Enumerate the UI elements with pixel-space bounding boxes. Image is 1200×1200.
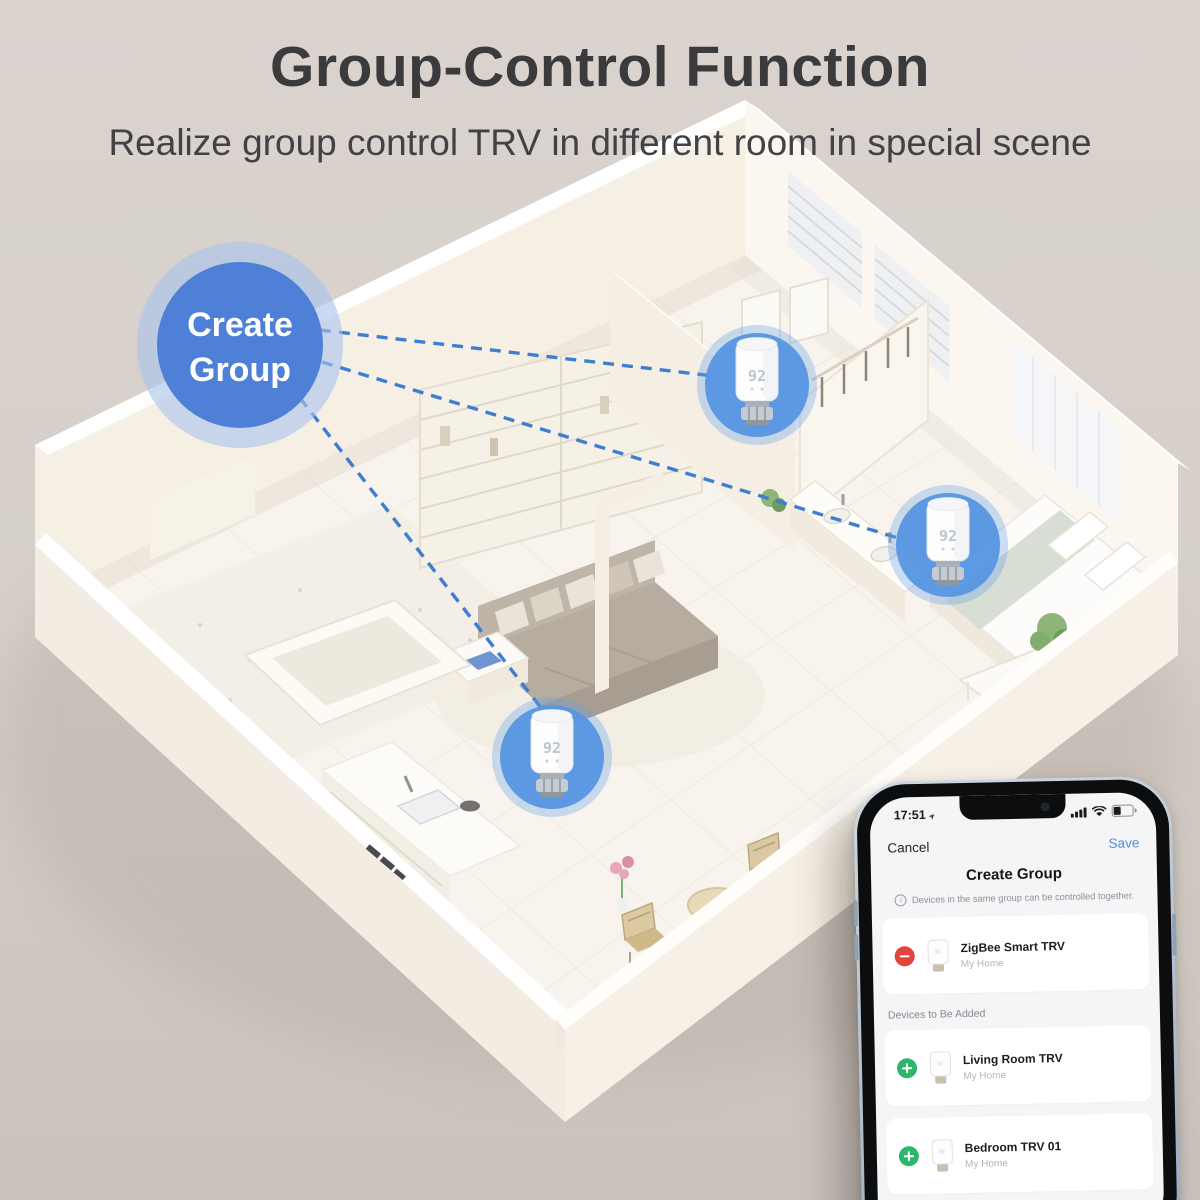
add-device-button[interactable]	[899, 1146, 919, 1166]
trv-thumbnail	[924, 939, 951, 972]
volume-up-button	[854, 900, 859, 926]
trv-thumbnail	[929, 1139, 956, 1172]
battery-icon	[1112, 804, 1134, 816]
wifi-icon	[1092, 806, 1107, 817]
volume-down-button	[854, 934, 859, 960]
device-location: My Home	[961, 956, 1066, 969]
camera-icon	[1040, 802, 1049, 811]
trv-display-value: 92	[939, 527, 957, 545]
device-location: My Home	[965, 1157, 1062, 1170]
trv-highlight-2: 92	[888, 485, 1008, 605]
status-time: 17:51	[894, 808, 926, 823]
device-location: My Home	[963, 1068, 1063, 1081]
create-group-badge: Create Group	[137, 242, 343, 448]
screen-title: Create Group	[871, 863, 1157, 886]
trv-thumbnail	[927, 1051, 954, 1084]
cancel-button[interactable]: Cancel	[887, 840, 929, 856]
cellular-icon	[1071, 806, 1087, 817]
trv-display-value: 92	[748, 367, 766, 385]
trv-highlight-1: 92	[697, 325, 817, 445]
trv-highlight-3: 92	[492, 697, 612, 817]
phone-mockup: 17:51➤	[853, 776, 1181, 1200]
device-to-add-card[interactable]: Living Room TRV My Home	[884, 1025, 1152, 1107]
badge-label-line2: Group	[189, 351, 291, 389]
group-device-card[interactable]: ZigBee Smart TRV My Home	[882, 913, 1150, 995]
note-row: i Devices in the same group can be contr…	[871, 889, 1157, 907]
phone-screen: 17:51➤	[869, 792, 1164, 1200]
badge-label-line1: Create	[187, 306, 293, 344]
add-device-button[interactable]	[897, 1058, 917, 1078]
device-name: ZigBee Smart TRV	[960, 938, 1065, 954]
notch	[959, 794, 1065, 820]
info-icon: i	[895, 894, 907, 906]
remove-device-button[interactable]	[894, 946, 914, 966]
phone-bezel: 17:51➤	[856, 779, 1178, 1200]
badge-circle	[157, 262, 323, 428]
trv-display-value: 92	[543, 739, 561, 757]
trv-device-1: 92	[736, 338, 778, 426]
note-text: Devices in the same group can be control…	[912, 890, 1134, 905]
device-to-add-card[interactable]: Bedroom TRV 01 My Home	[886, 1113, 1154, 1195]
power-button	[1172, 914, 1177, 956]
trv-device-2: 92	[927, 498, 969, 586]
trv-device-3: 92	[531, 710, 573, 798]
save-button[interactable]: Save	[1108, 835, 1139, 851]
location-arrow-icon: ➤	[927, 811, 938, 822]
section-label: Devices to Be Added	[888, 1004, 1146, 1021]
device-name: Living Room TRV	[963, 1051, 1063, 1067]
device-name: Bedroom TRV 01	[965, 1139, 1062, 1155]
marketing-image: Group-Control Function Realize group con…	[0, 0, 1200, 1200]
page-subtitle: Realize group control TRV in different r…	[0, 122, 1200, 164]
nav-bar: Cancel Save	[870, 819, 1157, 856]
page-title: Group-Control Function	[0, 34, 1200, 100]
